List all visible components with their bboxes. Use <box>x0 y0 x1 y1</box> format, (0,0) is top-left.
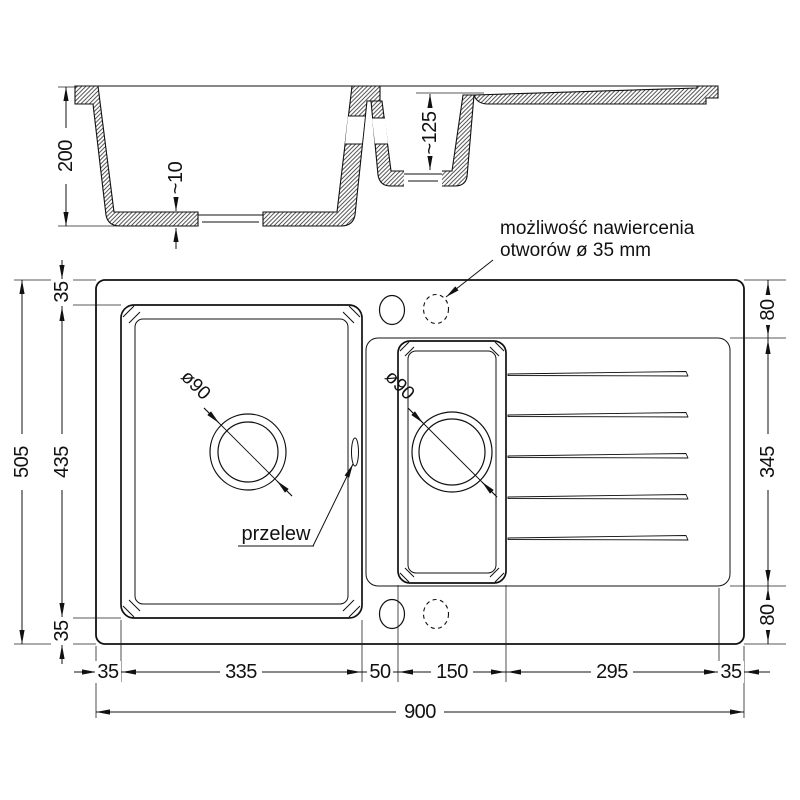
main-bowl-corner-bevels <box>123 306 360 617</box>
dim-label-35-left: 35 <box>97 661 119 683</box>
faucet-hole-top <box>380 296 405 325</box>
dim-overall-width: 900 <box>96 701 744 723</box>
dim-label-35-bottom: 35 <box>51 620 73 642</box>
dim-label-900: 900 <box>404 701 436 723</box>
second-drain-label: ø90 <box>380 366 418 404</box>
faucet-hole-bottom <box>380 600 405 629</box>
drainboard-grooves <box>508 372 688 541</box>
dim-label-435: 435 <box>51 446 73 478</box>
groove <box>508 536 688 541</box>
dim-label-345: 345 <box>757 446 779 478</box>
dim-bottom-chain: 35 335 50 150 295 35 <box>74 661 770 683</box>
drawing-canvas: 200 ~10 ~125 <box>0 0 800 800</box>
overflow-gap-main <box>345 116 365 144</box>
second-drain-gap <box>404 169 442 188</box>
overflow-hole <box>352 438 359 466</box>
optional-hole-bottom <box>424 600 449 629</box>
dim-overall-height: 505 <box>11 280 33 644</box>
dim-label-80-bottom: 80 <box>757 604 779 626</box>
groove <box>508 372 688 377</box>
plan-view: ø90 ø90 <box>96 218 744 644</box>
dim-label-150: 150 <box>436 661 468 683</box>
dim-label-80-top: 80 <box>757 299 779 321</box>
overflow-leader <box>313 464 353 546</box>
drill-note-leader <box>446 260 493 297</box>
dim-label-295: 295 <box>596 661 628 683</box>
drill-note: możliwość nawiercenia otworów ø 35 mm <box>446 218 695 297</box>
drill-note-line2: otworów ø 35 mm <box>500 240 651 261</box>
dim-floor-thickness: ~10 <box>165 161 187 249</box>
second-bowl: ø90 <box>380 341 506 583</box>
main-bowl-section-right-wall <box>263 86 380 226</box>
main-drain-label: ø90 <box>176 366 214 404</box>
main-bowl-section-wall <box>75 86 198 226</box>
dim-label-35-top: 35 <box>51 281 73 303</box>
dim-label-35-right: 35 <box>720 661 742 683</box>
drill-note-line1: możliwość nawiercenia <box>500 218 695 239</box>
optional-hole-top <box>424 295 449 324</box>
overflow-callout: przelew <box>238 464 353 546</box>
dim-label-125: ~125 <box>419 111 441 154</box>
dim-right-chain: 80 345 80 <box>757 280 779 644</box>
second-bowl-corner-bevels <box>400 342 504 582</box>
overflow-label: przelew <box>242 523 311 545</box>
groove <box>508 413 688 418</box>
dim-second-bowl-depth: ~125 <box>416 93 484 170</box>
main-bowl: ø90 <box>121 305 362 618</box>
faucet-holes <box>380 295 449 629</box>
dim-label-200: 200 <box>55 140 77 172</box>
dim-left-chain: 35 435 35 <box>51 260 73 664</box>
groove <box>508 495 688 500</box>
dim-label-505: 505 <box>11 446 33 478</box>
dim-label-10: ~10 <box>165 161 187 194</box>
drainboard-section-slab <box>474 86 718 104</box>
dim-label-335: 335 <box>225 661 257 683</box>
dim-label-50: 50 <box>369 661 391 683</box>
sink-technical-drawing: 200 ~10 ~125 <box>0 0 800 800</box>
groove <box>508 454 688 459</box>
